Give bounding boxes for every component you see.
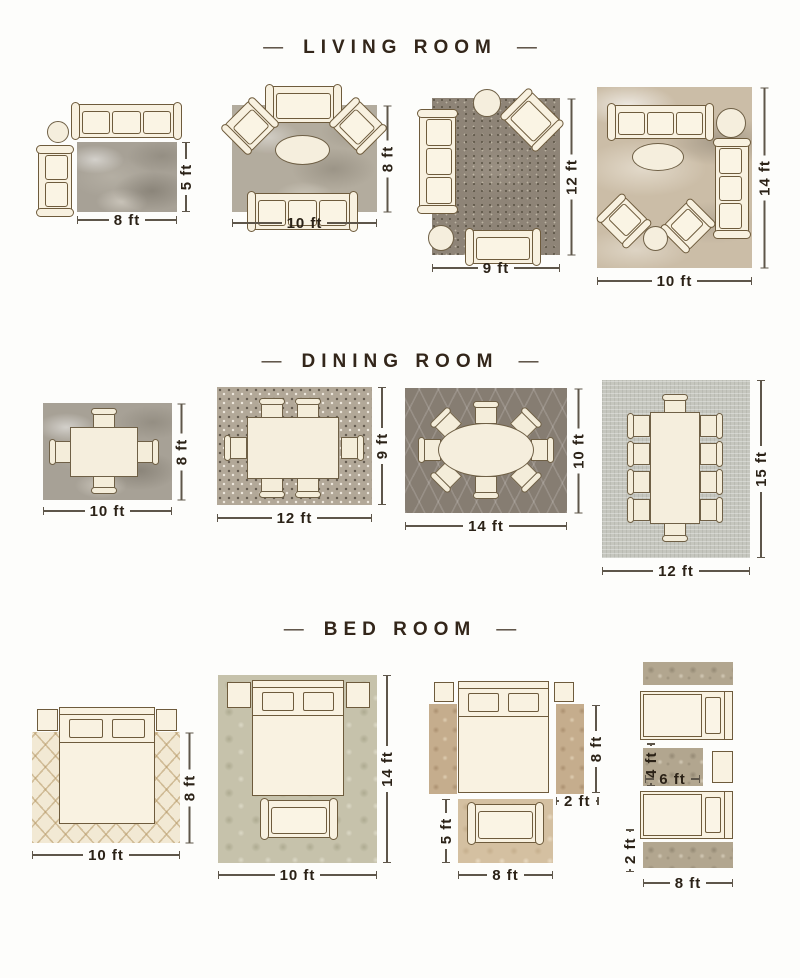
runner-height-dimension: 2 ft [621,838,639,872]
nightstand [712,751,733,783]
height-label: 2 ft [622,838,639,865]
runner-width-dimension: 8 ft [643,874,733,892]
mattress [643,694,702,737]
twin-bed [640,691,733,740]
headboard [724,692,725,739]
pillow [705,797,721,833]
runner-rug [643,842,733,868]
width-label: 6 ft [659,771,686,788]
runner-rug [643,662,733,685]
rug-size-guide: — LIVING ROOM — 8 ft 5 ft 10 ft [0,0,800,978]
headboard [724,792,725,838]
twin-bed [640,791,733,839]
bed-room-layout-4: 4 ft 6 ft 2 ft 8 ft [0,0,800,978]
mattress [643,794,702,836]
accent-rug-width-dimension: 6 ft [645,770,700,788]
width-label: 8 ft [675,875,702,892]
pillow [705,697,721,734]
